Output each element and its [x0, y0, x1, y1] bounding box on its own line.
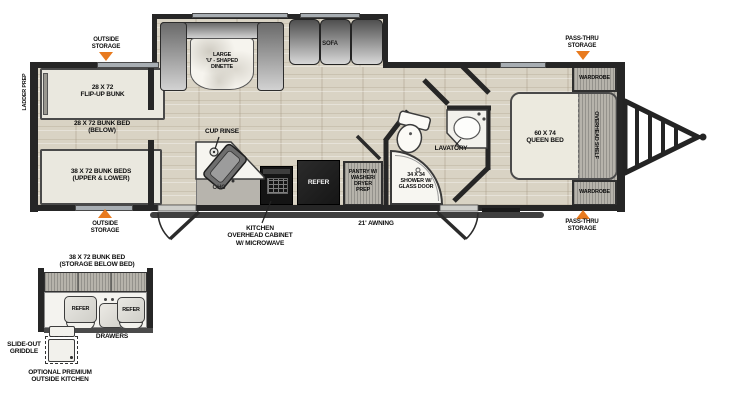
label-kitchen-cabinet: KITCHEN OVERHEAD CABINET W/ MICROWAVE: [222, 225, 298, 247]
inset-griddle-knob: [70, 356, 73, 359]
label-outside-storage-bottom: OUTSIDE STORAGE: [77, 221, 133, 234]
label-overhead-shelf: OVERHEAD SHELF: [593, 90, 599, 180]
pass-thru-arrow-down-icon: [576, 51, 590, 60]
inset-sink-faucet: [111, 298, 114, 301]
pass-thru-arrow-up-icon: [576, 210, 590, 219]
label-inset-bunk: 38 X 72 BUNK BED (STORAGE BELOW BED): [56, 254, 138, 269]
label-inset-drawers: DRAWERS: [88, 333, 136, 340]
inset-sink-faucet: [104, 298, 107, 301]
label-bunk-upper-lower: 38 X 72 BUNK BEDS (UPPER & LOWER): [48, 168, 154, 183]
kitchen-cabinet-pointer: [262, 201, 271, 223]
label-ladder-prep: LADDER PREP: [22, 47, 28, 137]
label-inset-griddle: SLIDE-OUT GRIDDLE: [4, 341, 44, 356]
label-wardrobe-bottom: WARDROBE: [572, 189, 617, 195]
inset-refer-right: REFER: [117, 297, 145, 323]
inset-refer-left: REFER: [64, 296, 97, 323]
outside-storage-arrow-up-icon: [98, 209, 112, 218]
label-ohc: OHC: [206, 185, 232, 192]
trailer-hitch-icon: [625, 101, 707, 173]
label-cup-rinse: CUP RINSE: [196, 128, 248, 135]
label-dinette: LARGE 'U' - SHAPED DINETTE: [195, 52, 249, 70]
inset-griddle: [48, 339, 75, 362]
inset-refer-right-label: REFER: [122, 307, 140, 313]
label-wardrobe-top: WARDROBE: [572, 75, 617, 81]
label-outside-storage-top: OUTSIDE STORAGE: [78, 37, 134, 50]
label-bunk-below: 28 X 72 BUNK BED (BELOW): [52, 120, 152, 135]
kitchen-sink-counter: [196, 142, 264, 190]
label-sofa: SOFA: [315, 41, 345, 48]
inset-bunk-band: [44, 272, 147, 292]
bath-door-leaf: [357, 136, 380, 159]
label-lavatory: LAVATORY: [424, 145, 478, 152]
outside-kitchen-inset: REFER REFER 38 X 72 BUNK BED (STORAGE BE…: [0, 250, 200, 400]
label-pass-thru-bottom: PASS-THRU STORAGE: [554, 219, 610, 232]
label-queen-bed: 60 X 74 QUEEN BED: [517, 130, 573, 145]
entry-door-2: [437, 205, 478, 239]
entry-door-1: [158, 205, 199, 239]
outside-storage-arrow-down-icon: [99, 52, 113, 61]
label-pantry: PANTRY W/ WASHER/ DRYER PREP: [344, 169, 382, 193]
inset-wall-right: [147, 268, 153, 332]
label-flip-up-bunk: 28 X 72 FLIP-UP BUNK: [55, 84, 150, 99]
inset-refer-left-label: REFER: [72, 306, 90, 312]
label-shower: 34 X 34 SHOWER W/ GLASS DOOR: [390, 172, 442, 190]
label-pass-thru-top: PASS-THRU STORAGE: [554, 36, 610, 49]
floor-plan-canvas: REFER: [0, 0, 729, 412]
label-inset-caption: OPTIONAL PREMIUM OUTSIDE KITCHEN: [26, 369, 94, 384]
label-awning: 21' AWNING: [350, 220, 402, 227]
lavatory-sink: [447, 110, 487, 148]
